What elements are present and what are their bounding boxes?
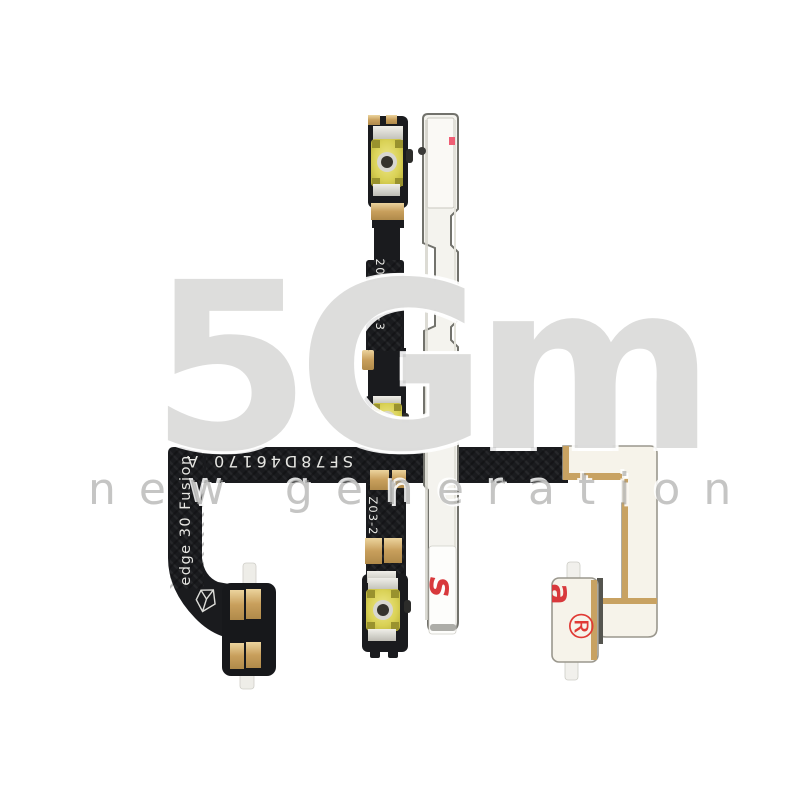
cap-print-letter: a: [541, 583, 579, 605]
flex-date-marking: 20110-9-3: [373, 258, 387, 331]
bracket-nub: [418, 147, 426, 155]
gold-tab: [368, 115, 380, 125]
gold-tab: [386, 115, 397, 124]
bracket-edge-highlight: [454, 120, 456, 615]
flex-serial-marking: SF78D46170_A: [183, 451, 353, 471]
flex-cable-photo-canvas: 20110-9-3 SF78D46170_A edge 30 Fusion: [0, 0, 800, 800]
flex-cable: 20110-9-3 SF78D46170_A edge 30 Fusion: [168, 115, 568, 689]
gold-band: [371, 203, 404, 220]
flex-model-marking: edge 30 Fusion: [178, 454, 194, 585]
bracket-nub: [420, 305, 426, 311]
bracket-red-mark: [449, 137, 455, 145]
flex-batch-marking: Z03-2: [366, 497, 380, 536]
bracket-bottom-cap: [430, 624, 456, 631]
registered-trademark-icon: ®: [560, 609, 600, 643]
product-photo: 20110-9-3 SF78D46170_A edge 30 Fusion: [0, 0, 800, 800]
bracket-edge-shading: [425, 120, 428, 620]
metal-bracket: asc: [418, 114, 461, 634]
